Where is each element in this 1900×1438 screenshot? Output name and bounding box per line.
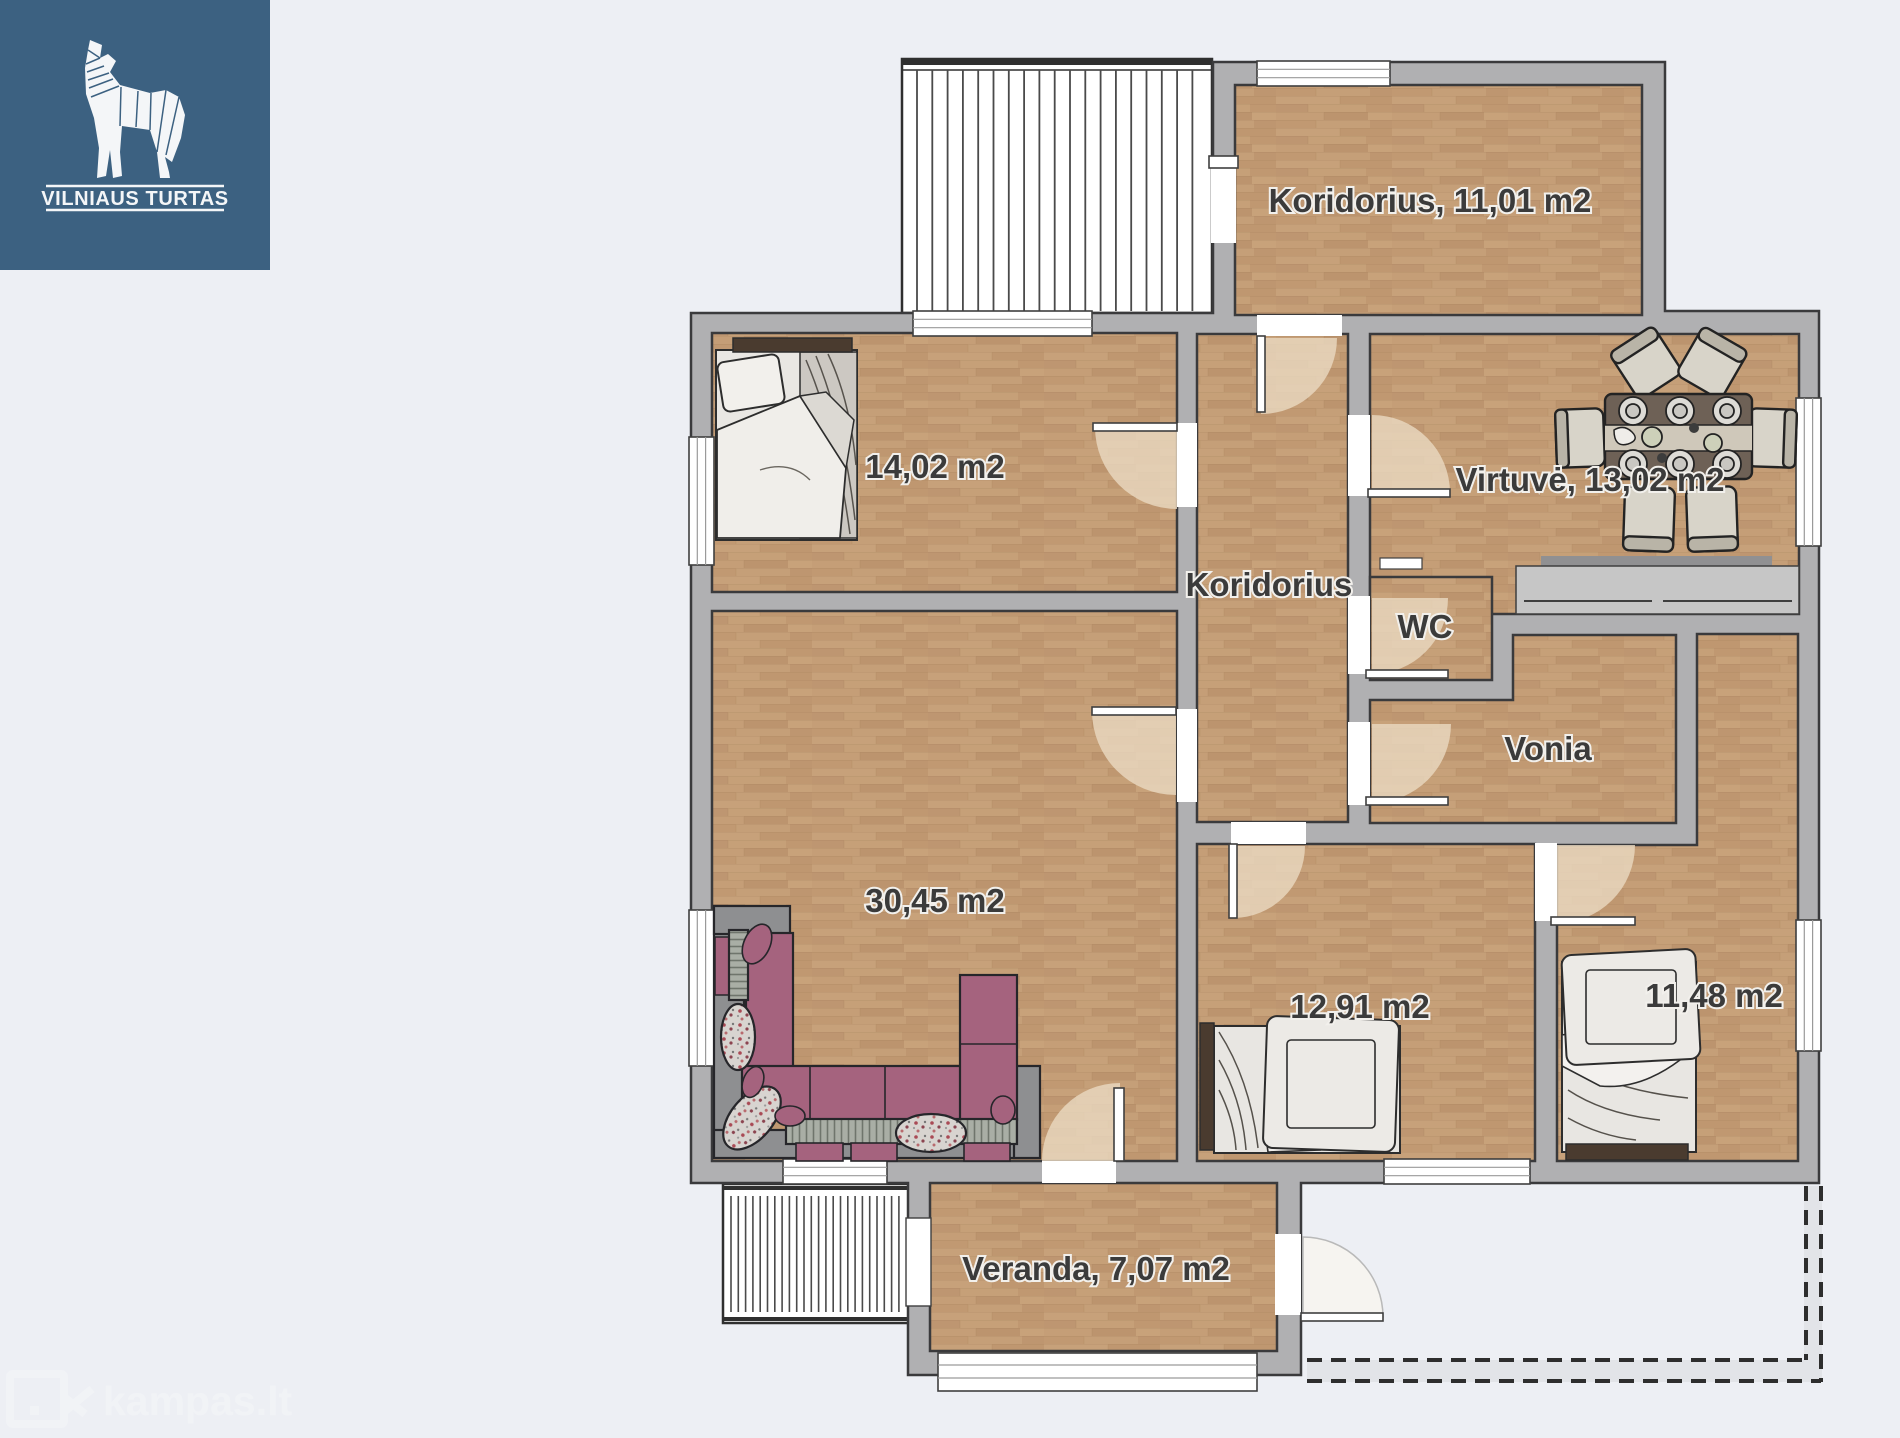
svg-text:Vonia: Vonia [1504, 730, 1592, 767]
svg-text:11,48 m2: 11,48 m2 [1645, 977, 1783, 1014]
svg-text:30,45 m2: 30,45 m2 [865, 882, 1004, 919]
svg-text:Koridorius: Koridorius [1186, 566, 1353, 603]
svg-text:WC: WC [1398, 608, 1453, 645]
svg-text:14,02 m2: 14,02 m2 [865, 448, 1004, 485]
svg-text:Koridorius, 11,01 m2: Koridorius, 11,01 m2 [1269, 182, 1592, 219]
svg-text:Veranda, 7,07 m2: Veranda, 7,07 m2 [962, 1250, 1230, 1287]
svg-text:kampas.lt: kampas.lt [103, 1378, 292, 1424]
svg-text:12,91 m2: 12,91 m2 [1290, 988, 1429, 1025]
svg-text:VILNIAUS TURTAS: VILNIAUS TURTAS [41, 188, 229, 210]
svg-text:Virtuvė, 13,02 m2: Virtuvė, 13,02 m2 [1455, 461, 1724, 498]
